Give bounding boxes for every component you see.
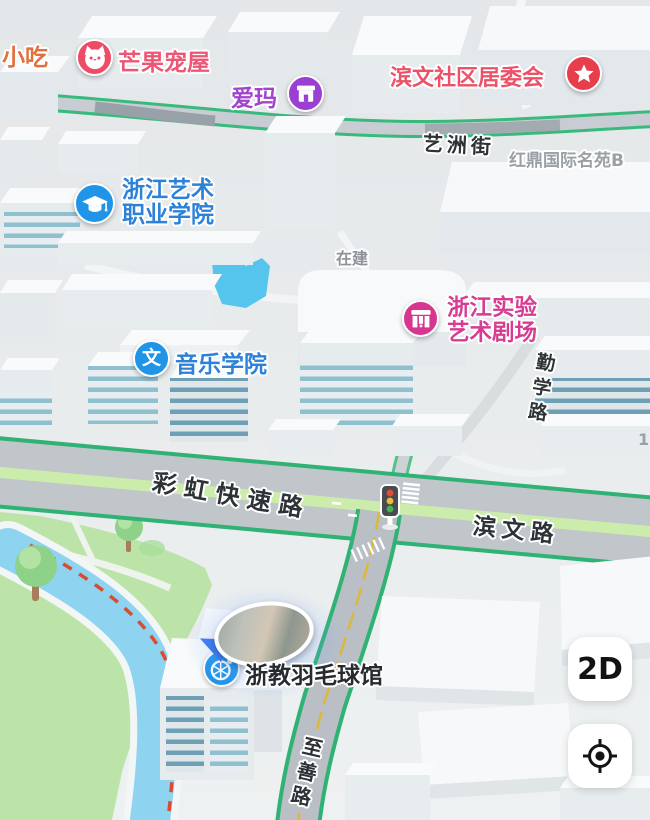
poi-label-line1: 浙江实验 — [447, 296, 537, 321]
poi-label-zaijian: 在建 — [336, 245, 368, 269]
storefront-glyph — [294, 82, 318, 106]
cat-glyph — [82, 45, 108, 71]
poi-label-line2: 艺术剧场 — [447, 321, 537, 346]
poi-label-line2: 职业学院 — [122, 203, 214, 228]
road-label-yizhoujie: 艺洲街 — [422, 127, 495, 160]
poi-label-yinyue[interactable]: 音乐学院 — [175, 345, 267, 379]
poi-label-hongding[interactable]: 红鼎国际名苑B — [509, 146, 624, 171]
locate-button[interactable] — [568, 724, 632, 788]
graduation-cap-icon[interactable] — [74, 183, 115, 224]
map-canvas[interactable]: 文 小吃 芒果宠屋 爱玛 滨文社区居委会 红鼎国际名苑B 浙江艺术 职业学院 在… — [0, 0, 650, 820]
storefront-icon[interactable] — [287, 75, 324, 112]
theater-glyph — [409, 307, 433, 331]
locate-icon — [580, 736, 620, 776]
poi-label-yumaoguan[interactable]: 浙教羽毛球馆 — [245, 656, 383, 690]
star-glyph — [572, 62, 596, 86]
star-icon[interactable] — [565, 55, 602, 92]
theater-icon[interactable] — [402, 300, 439, 337]
poi-label-mangguo[interactable]: 芒果宠屋 — [118, 43, 210, 77]
poi-label-xiaochi[interactable]: 小吃 — [2, 38, 48, 72]
poi-label-juweihui[interactable]: 滨文社区居委会 — [390, 60, 544, 92]
view-toggle-label: 2D — [577, 652, 623, 687]
view-toggle-2d-button[interactable]: 2D — [568, 637, 632, 701]
poi-label-juchang[interactable]: 浙江实验 艺术剧场 — [447, 296, 537, 346]
poi-label-aima[interactable]: 爱玛 — [231, 79, 277, 113]
wen-icon[interactable]: 文 — [133, 340, 170, 377]
wen-char: 文 — [142, 349, 161, 368]
poi-label-line1: 浙江艺术 — [122, 178, 214, 203]
building-number-label: 1 — [638, 430, 649, 449]
cat-icon[interactable] — [76, 39, 113, 76]
graduation-cap-glyph — [81, 190, 109, 218]
poi-label-yishu-xueyuan[interactable]: 浙江艺术 职业学院 — [122, 178, 214, 228]
